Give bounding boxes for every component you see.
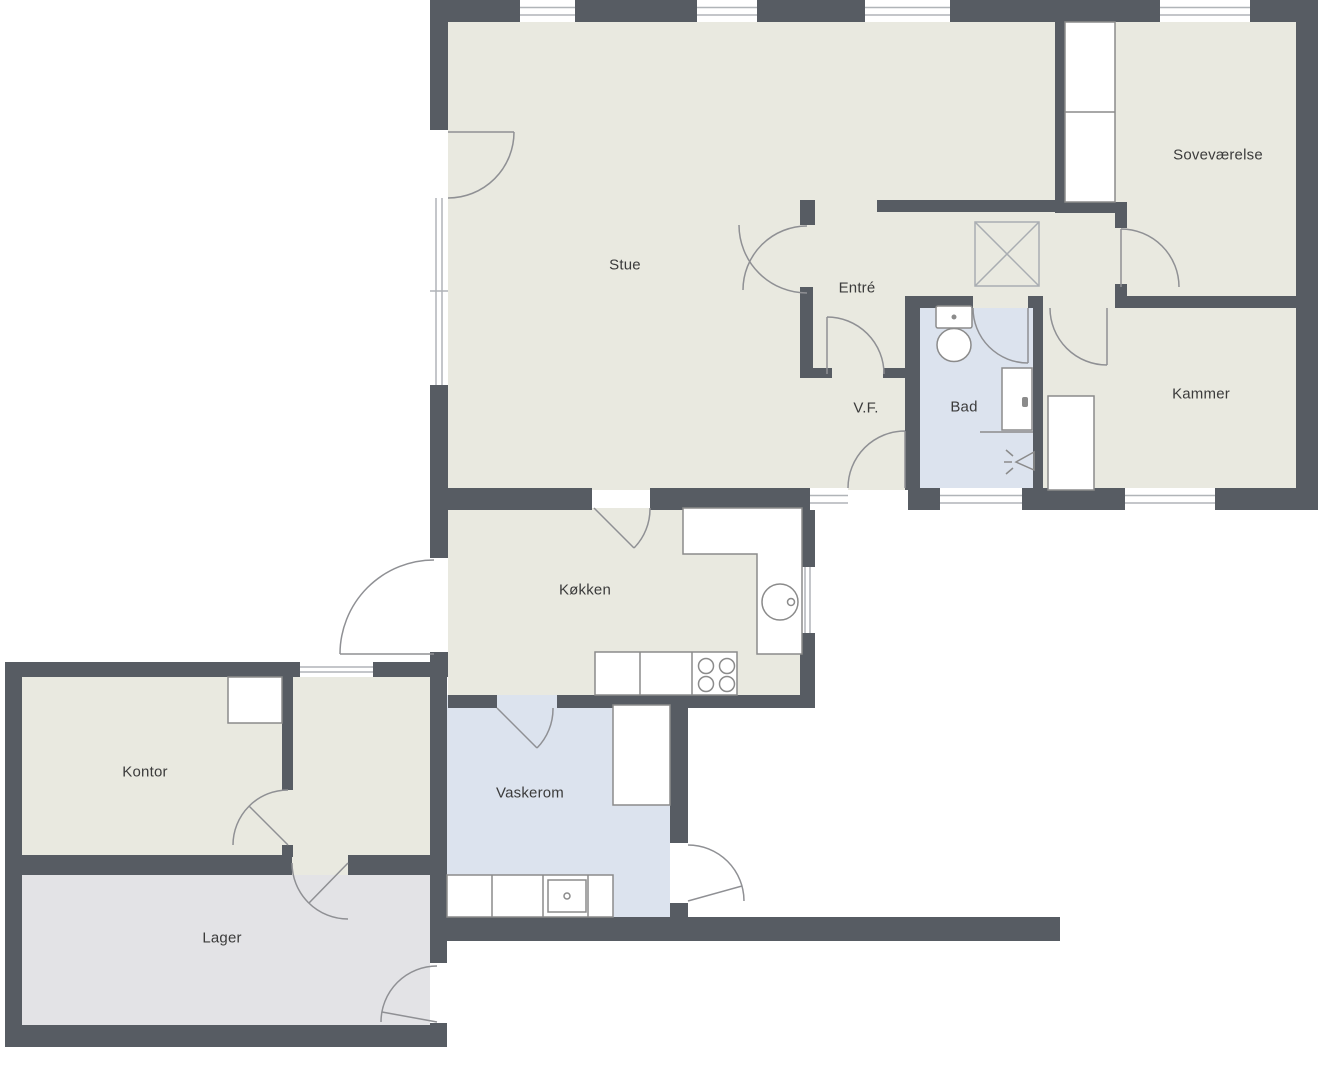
door-laundry-exterior xyxy=(688,845,744,901)
floor-plan: Stue Soveværelse Entré V.F. Bad Kammer K… xyxy=(0,0,1318,1080)
room-label-vaskerom: Vaskerom xyxy=(496,785,564,802)
kitchen-sink-icon xyxy=(762,584,798,620)
window-office-top xyxy=(300,662,373,677)
window-top-1 xyxy=(520,0,575,22)
stove-icon xyxy=(595,652,737,695)
room-label-sovevaerelse: Soveværelse xyxy=(1173,147,1263,164)
window-bath-bottom xyxy=(940,488,1022,510)
room-label-bad: Bad xyxy=(950,399,977,416)
room-label-entre: Entré xyxy=(839,280,876,297)
floor-main-house xyxy=(448,22,1296,490)
window-top-3 xyxy=(865,0,950,22)
room-label-lager: Lager xyxy=(202,930,241,947)
window-vf-bottom xyxy=(810,488,848,510)
cabinet-chamber-icon xyxy=(1048,396,1094,490)
door-kitchen-exterior xyxy=(340,560,434,654)
shower-door-icon xyxy=(1002,368,1032,430)
laundry-counter-icon xyxy=(447,875,613,917)
window-chamber-bottom xyxy=(1125,488,1215,510)
toilet-icon xyxy=(936,306,972,362)
laundry-sink-icon xyxy=(548,880,586,912)
kontor-box-icon xyxy=(228,677,282,723)
room-label-kontor: Kontor xyxy=(122,764,167,781)
window-living-left xyxy=(430,198,448,385)
window-top-4 xyxy=(1160,0,1250,22)
floor-office-wing xyxy=(22,677,430,875)
cabinet-laundry-icon xyxy=(613,705,670,805)
floor-storage xyxy=(22,875,430,1025)
room-label-stue: Stue xyxy=(609,257,641,274)
room-label-vf: V.F. xyxy=(853,400,878,417)
room-label-koekken: Køkken xyxy=(559,582,611,599)
wardrobe-icon xyxy=(1065,22,1115,202)
room-label-kammer: Kammer xyxy=(1172,386,1230,403)
window-top-2 xyxy=(697,0,757,22)
